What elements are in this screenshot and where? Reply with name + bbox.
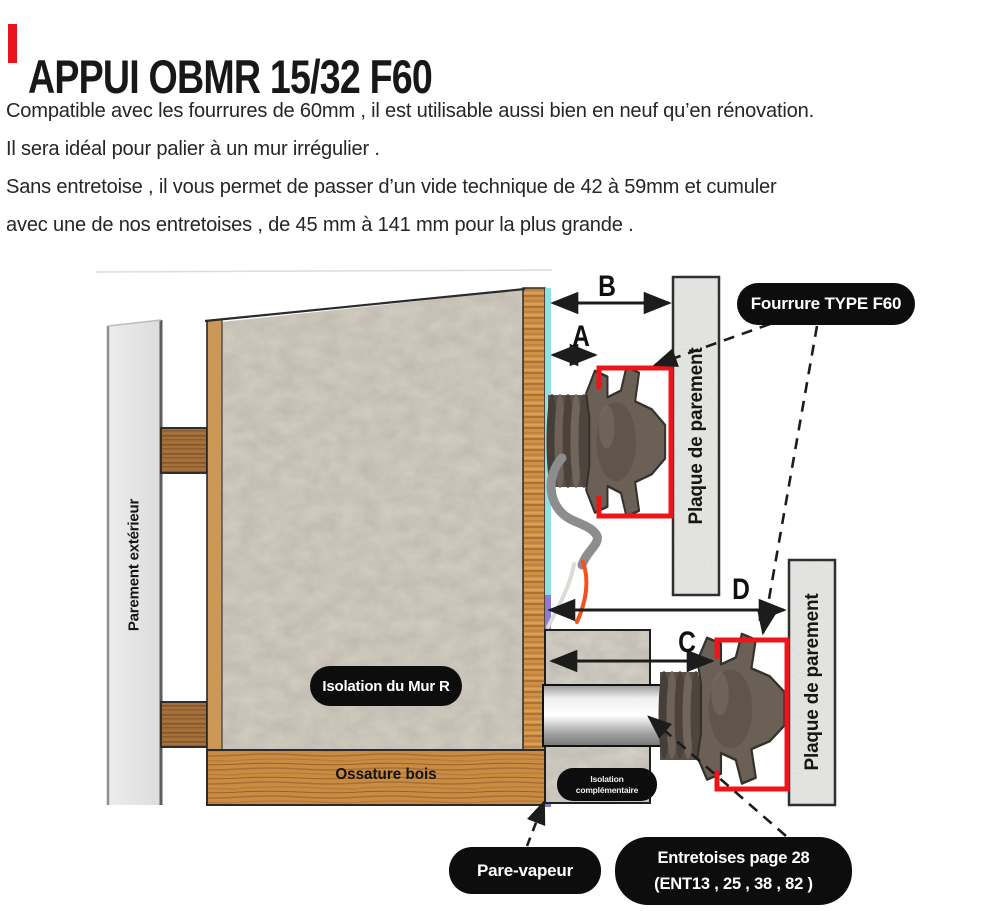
wood-stud — [523, 288, 545, 805]
appui-lower-head — [697, 634, 784, 784]
figure-border — [96, 270, 552, 272]
isolation-complementaire-badge: Isolation complémentaire — [557, 768, 657, 801]
dimension-letter-a: A — [572, 320, 590, 354]
dimension-letter-c: C — [678, 626, 696, 660]
fourrure-type-f60-badge: Fourrure TYPE F60 — [737, 283, 915, 325]
plaque-parement-lower-label: Plaque de parement — [802, 594, 824, 771]
entretoise-cylinder — [543, 685, 663, 746]
dimension-letter-d: D — [732, 573, 750, 607]
intro-line: Sans entretoise , il vous permet de pass… — [6, 168, 976, 206]
isolation-mur-badge: Isolation du Mur R — [310, 666, 462, 706]
intro-line: Il sera idéal pour palier à un mur irrég… — [6, 130, 976, 168]
intro-line: Compatible avec les fourrures de 60mm , … — [6, 92, 976, 130]
catalog-page: APPUI OBMR 15/32 F60 Compatible avec les… — [0, 0, 1000, 911]
entretoises-line: (ENT13 , 25 , 38 , 82 ) — [654, 871, 813, 897]
orange-wire — [577, 562, 586, 622]
ossature-bois-label: Ossature bois — [335, 766, 436, 784]
parement-exterieur-label: Parement extérieur — [126, 499, 143, 631]
isolation-complementaire-line: complémentaire — [576, 785, 638, 796]
entretoises-line: Entretoises page 28 — [657, 845, 809, 871]
diagram-drawing — [0, 262, 1000, 911]
dimension-letter-b: B — [598, 270, 616, 304]
intro-paragraph: Compatible avec les fourrures de 60mm , … — [6, 92, 976, 244]
pare-vapeur-badge: Pare-vapeur — [449, 847, 601, 894]
leader-pare-vapeur — [527, 802, 544, 846]
isolation-complementaire-line: Isolation — [590, 774, 623, 785]
white-wire — [548, 564, 574, 627]
wood-batten-upper — [161, 428, 207, 473]
osb-strip — [207, 319, 222, 751]
wood-batten-lower — [161, 702, 207, 747]
intro-line: avec une de nos entretoises , de 45 mm à… — [6, 206, 976, 244]
title-accent-bar — [8, 24, 17, 63]
technical-diagram: Parement extérieur Plaque de parement Pl… — [0, 262, 1000, 911]
plaque-parement-upper-label: Plaque de parement — [686, 348, 708, 525]
entretoises-badge: Entretoises page 28 (ENT13 , 25 , 38 , 8… — [615, 837, 852, 905]
